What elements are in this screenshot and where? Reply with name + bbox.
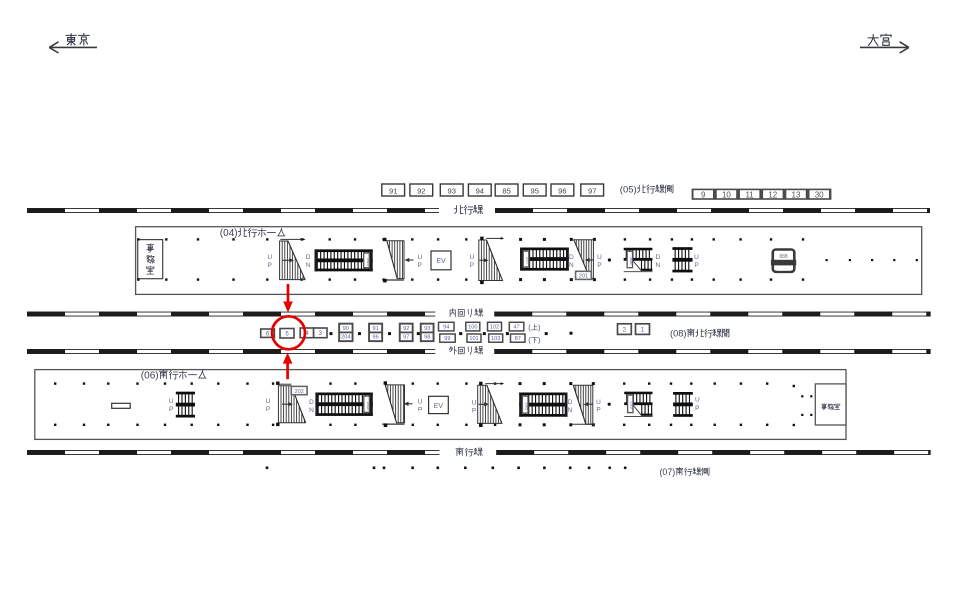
svg-text:U: U: [596, 399, 601, 406]
svg-text:11: 11: [745, 191, 754, 200]
svg-text:D: D: [569, 254, 574, 261]
svg-text:D: D: [655, 254, 660, 261]
svg-text:102: 102: [490, 325, 499, 331]
svg-text:10: 10: [722, 191, 731, 200]
svg-text:9: 9: [701, 191, 706, 200]
svg-text:97: 97: [403, 335, 409, 341]
svg-text:D: D: [309, 399, 314, 406]
svg-text:U: U: [472, 399, 477, 406]
svg-text:201: 201: [579, 274, 588, 280]
svg-text:206: 206: [629, 257, 634, 265]
svg-text:U: U: [266, 398, 271, 405]
svg-text:96: 96: [372, 335, 378, 341]
svg-text:P: P: [695, 405, 699, 412]
svg-text:P: P: [596, 407, 600, 414]
svg-text:U: U: [470, 254, 475, 261]
svg-text:93: 93: [447, 186, 455, 195]
svg-text:12: 12: [768, 191, 777, 200]
svg-text:203: 203: [366, 402, 371, 410]
svg-text:(08): (08): [670, 329, 687, 339]
svg-text:91: 91: [372, 326, 378, 332]
svg-text:U: U: [597, 254, 602, 261]
svg-text:N: N: [569, 262, 574, 269]
svg-text:47: 47: [513, 325, 519, 331]
svg-text:P: P: [169, 406, 173, 413]
svg-text:U: U: [418, 398, 423, 405]
svg-text:1: 1: [641, 326, 645, 333]
svg-text:D: D: [306, 254, 311, 261]
svg-text:N: N: [568, 407, 573, 414]
svg-text:U: U: [268, 254, 273, 261]
svg-text:202: 202: [295, 389, 304, 395]
svg-text:91: 91: [389, 186, 397, 195]
svg-text:98: 98: [424, 335, 430, 341]
svg-text:P: P: [268, 262, 272, 269]
svg-text:87: 87: [515, 336, 521, 342]
svg-text:(06): (06): [141, 370, 159, 381]
svg-text:2: 2: [623, 326, 627, 333]
svg-text:U: U: [694, 254, 699, 261]
svg-text:30: 30: [815, 191, 824, 200]
svg-text:100: 100: [468, 325, 477, 331]
svg-text:U: U: [695, 397, 700, 404]
svg-text:(05): (05): [620, 185, 637, 196]
svg-text:P: P: [472, 407, 476, 414]
svg-text:205: 205: [366, 258, 371, 266]
svg-text:207: 207: [525, 257, 530, 265]
svg-text:P: P: [694, 262, 698, 269]
svg-text:95: 95: [530, 186, 538, 195]
svg-text:94: 94: [443, 325, 449, 331]
svg-text:209: 209: [630, 401, 635, 409]
svg-text:N: N: [306, 262, 311, 269]
svg-text:92: 92: [403, 326, 409, 332]
svg-text:99: 99: [444, 336, 450, 342]
svg-text:N: N: [309, 407, 314, 414]
svg-text:85: 85: [502, 186, 510, 195]
svg-text:EV: EV: [436, 258, 446, 265]
svg-text:P: P: [470, 262, 474, 269]
svg-text:92: 92: [417, 186, 425, 195]
svg-text:P: P: [418, 406, 422, 413]
svg-text:(04): (04): [220, 228, 238, 239]
svg-text:94: 94: [476, 186, 484, 195]
svg-text:204: 204: [341, 335, 350, 341]
svg-text:96: 96: [558, 186, 566, 195]
svg-text:P: P: [418, 262, 422, 269]
svg-text:208: 208: [525, 402, 530, 410]
svg-text:101: 101: [469, 336, 478, 342]
svg-text:EV: EV: [434, 403, 444, 410]
svg-text:P: P: [597, 262, 601, 269]
svg-text:103: 103: [491, 336, 500, 342]
svg-text:U: U: [169, 398, 174, 405]
svg-text:(07): (07): [660, 467, 676, 477]
svg-text:D: D: [568, 399, 573, 406]
svg-text:90: 90: [343, 326, 349, 332]
svg-text:N: N: [655, 262, 660, 269]
svg-text:93: 93: [424, 326, 430, 332]
svg-text:97: 97: [588, 186, 596, 195]
svg-text:13: 13: [792, 191, 801, 200]
svg-text:P: P: [266, 406, 270, 413]
svg-text:U: U: [418, 254, 423, 261]
svg-text:888: 888: [779, 254, 788, 260]
